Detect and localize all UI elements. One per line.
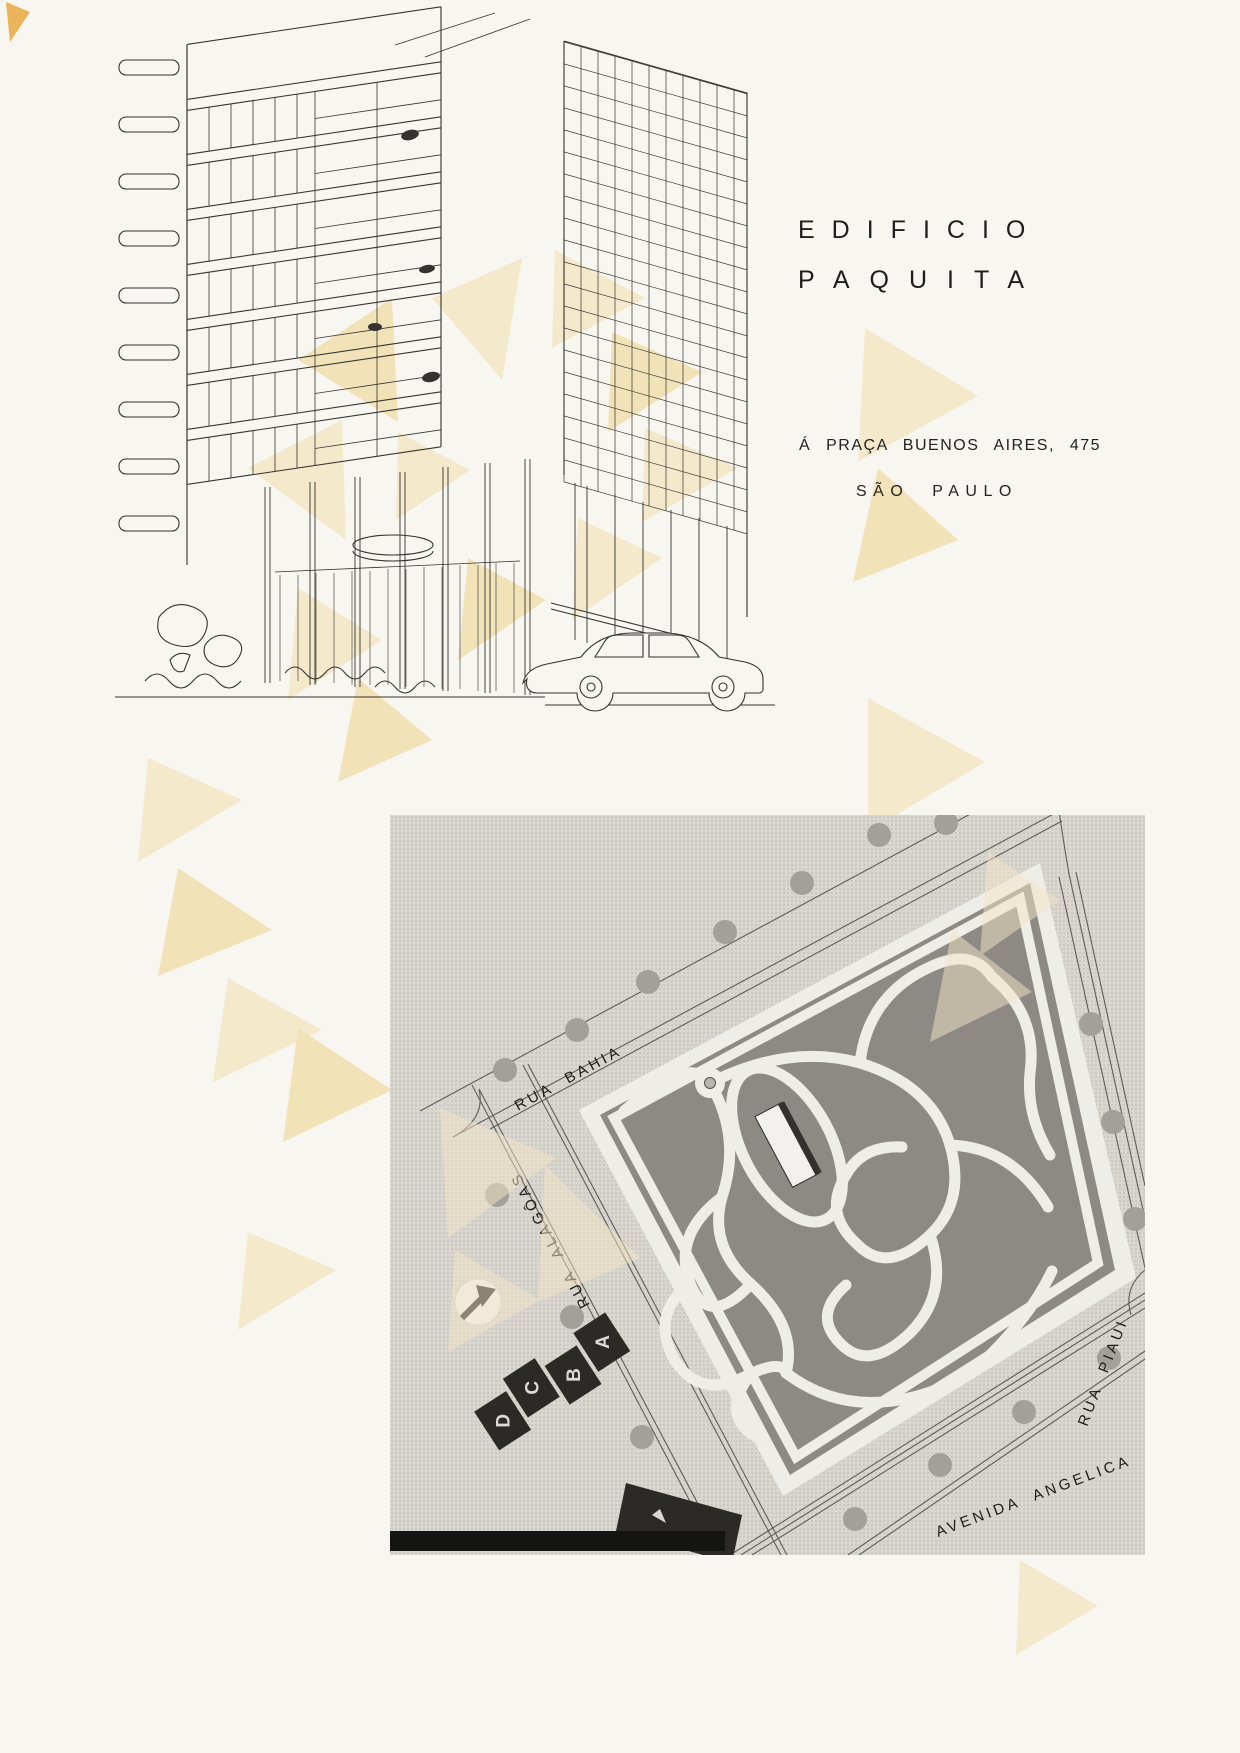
block-letter-b: B <box>564 1368 585 1382</box>
city-line: SÃO PAULO <box>856 483 1018 501</box>
main-facade <box>187 7 441 485</box>
balcony-stack <box>119 45 187 565</box>
building-name-line2: PAQUITA <box>798 266 1044 295</box>
site-plan-graphic: D C B A RUA BAHIA RUA ALAGÔAS RUA PIAUI … <box>390 815 1145 1555</box>
site-plan-photo: D C B A RUA BAHIA RUA ALAGÔAS RUA PIAUI … <box>390 815 1145 1555</box>
mural-scribbles <box>145 605 435 693</box>
balcony-plants <box>368 128 441 384</box>
building-illustration <box>75 5 780 720</box>
fountain <box>695 1068 725 1098</box>
street-label-angelica: AVENIDA ANGELICA <box>933 1452 1133 1540</box>
curtain-wall-tower <box>551 41 747 670</box>
lettered-blocks: D C B A <box>468 1312 637 1450</box>
corner-ink-mark <box>6 2 30 42</box>
block-letter-a: A <box>593 1335 614 1349</box>
block-letter-c: C <box>522 1381 543 1395</box>
north-arrow-icon <box>455 1279 501 1325</box>
street-label-piaui: RUA PIAUI <box>1075 1316 1132 1428</box>
scanned-page: { "title": { "line1": "EDIFICIO", "line2… <box>0 0 1240 1753</box>
address-line: Á PRAÇA BUENOS AIRES, 475 <box>799 437 1101 455</box>
street-label-alagoas: RUA ALAGÔAS <box>507 1169 594 1312</box>
block-letter-d: D <box>494 1414 515 1428</box>
photo-edge-bar <box>390 1531 725 1551</box>
building-name-line1: EDIFICIO <box>798 216 1042 245</box>
